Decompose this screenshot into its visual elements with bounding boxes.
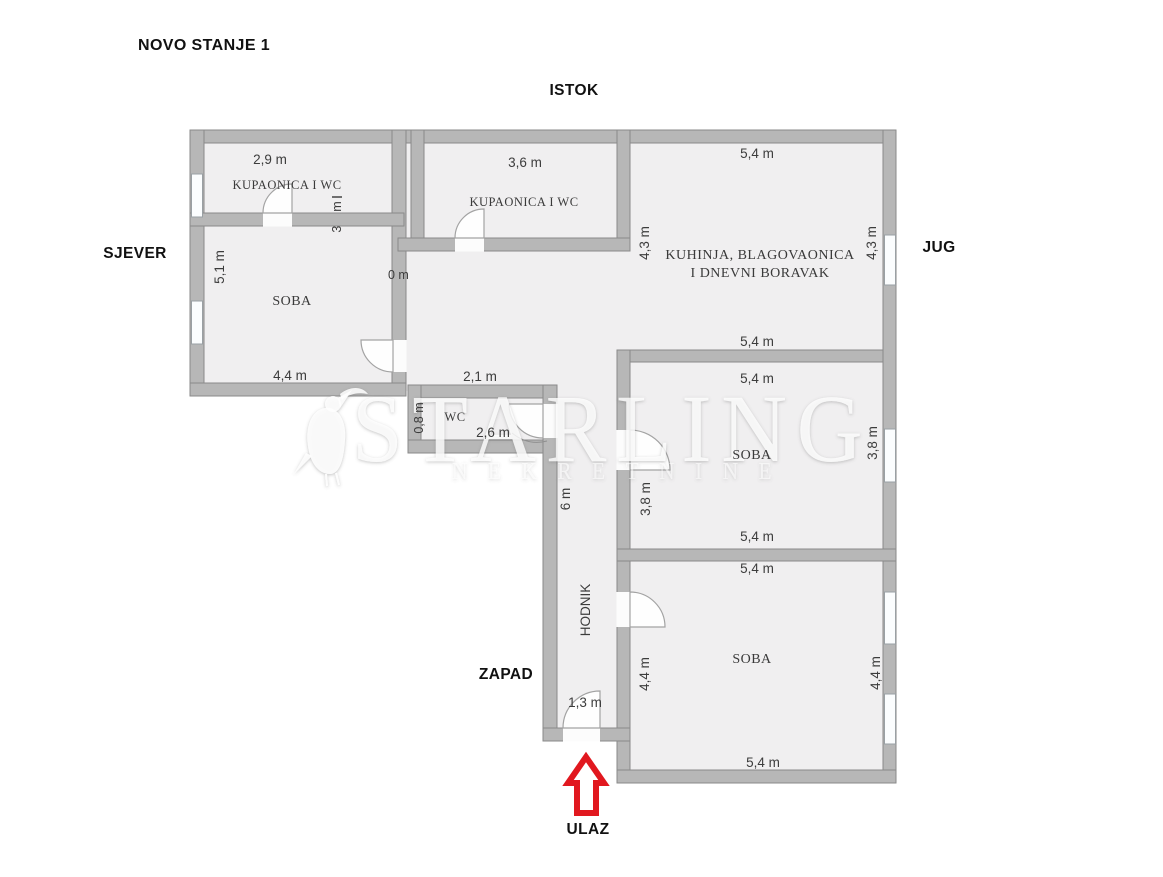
kitchen-dim-bottom: 5,4 m (740, 334, 774, 349)
entrance-label: ULAZ (567, 821, 610, 838)
wall-soba3-bottom (617, 770, 896, 783)
window-soba2-right (885, 429, 896, 482)
wc-dim-height: 0,8 m (412, 402, 426, 433)
page-title: NOVO STANJE 1 (138, 37, 270, 54)
wc-dim-width: 2,6 m (476, 425, 510, 440)
bathroom2-name: KUPAONICA I WC (469, 195, 578, 209)
wall-outer-left (190, 130, 204, 396)
kitchen-dim-top: 5,4 m (740, 146, 774, 161)
door-gap-bathroom1 (263, 213, 292, 227)
soba2-name: SOBA (732, 448, 772, 463)
soba2-dim-bottom: 5,4 m (740, 529, 774, 544)
window-soba3-right-lower (885, 694, 896, 744)
wall-kitchen-bottom (617, 350, 896, 362)
corridor-clipped-fragment: 0 m (388, 268, 409, 282)
door-gap-entrance (563, 728, 600, 742)
entrance-arrow-icon (568, 757, 604, 813)
floor-kitchen (623, 136, 889, 356)
floor-bathroom2 (418, 136, 623, 244)
wall-kitchen-left (617, 130, 630, 251)
wall-bathroom2-bottom (398, 238, 630, 251)
door-gap-bathroom2 (455, 238, 484, 252)
wall-outer-top (190, 130, 896, 143)
window-kitchen-right (885, 235, 896, 285)
compass-north: SJEVER (103, 245, 167, 262)
soba3-dim-bottom: 5,4 m (746, 755, 780, 770)
bathroom1-name: KUPAONICA I WC (232, 178, 341, 192)
door-gap-soba3 (617, 592, 631, 627)
floor-plan-drawing: 3,1 m (0, 0, 1163, 877)
watermark: STARLING NEKRETNINE (294, 375, 872, 486)
compass-east: ISTOK (549, 82, 598, 99)
window-soba3-right-upper (885, 592, 896, 644)
soba2-dim-left: 3,8 m (638, 482, 653, 516)
hallway-door-width: 1,3 m (568, 695, 602, 710)
kitchen-name-line1: KUHINJA, BLAGOVAONICA (665, 248, 855, 263)
door-gap-soba1 (392, 340, 407, 372)
kitchen-dim-left: 4,3 m (637, 226, 652, 260)
hallway-name: HODNIK (578, 584, 593, 637)
bathroom1-width: 2,9 m (253, 152, 287, 167)
soba1-dim-bottom: 4,4 m (273, 368, 307, 383)
compass-west: ZAPAD (479, 666, 533, 683)
compass-south: JUG (922, 239, 955, 256)
soba1-name: SOBA (272, 294, 312, 309)
wall-shaft-right (411, 130, 424, 251)
corridor-width: 2,1 m (463, 369, 497, 384)
floor-corridor (398, 244, 623, 391)
window-soba1-left (192, 301, 203, 344)
wc-name: WC (444, 410, 465, 424)
soba3-name: SOBA (732, 652, 772, 667)
kitchen-dim-right: 4,3 m (864, 226, 879, 260)
wall-soba-divider (617, 549, 896, 561)
soba3-dim-top: 5,4 m (740, 561, 774, 576)
hallway-length: 6 m (558, 488, 573, 511)
soba1-dim-left: 5,1 m (212, 250, 227, 284)
soba3-dim-left: 4,4 m (637, 657, 652, 691)
kitchen-name-line2: I DNEVNI BORAVAK (691, 266, 830, 281)
soba3-dim-right: 4,4 m (868, 656, 883, 690)
bathroom2-width: 3,6 m (508, 155, 542, 170)
soba2-dim-right: 3,8 m (865, 426, 880, 460)
soba2-dim-top: 5,4 m (740, 371, 774, 386)
wall-bathroom1-bottom (190, 213, 404, 226)
floor-plan-page: 3,1 m (0, 0, 1163, 877)
window-bathroom1-left (192, 174, 203, 217)
